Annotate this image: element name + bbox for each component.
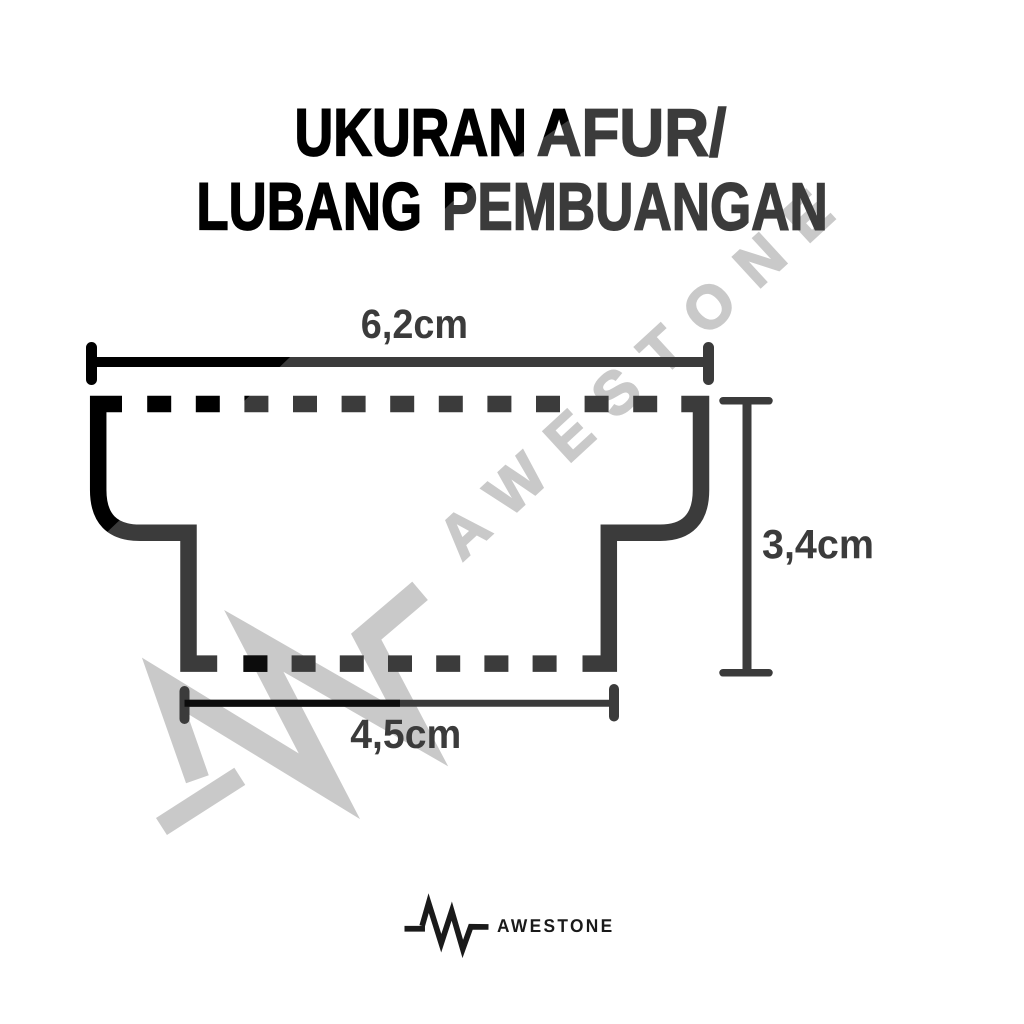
- svg-text:UKURAN: UKURAN: [294, 95, 527, 170]
- svg-text:LUBANG: LUBANG: [196, 169, 422, 244]
- svg-text:AWESTONE: AWESTONE: [497, 915, 615, 936]
